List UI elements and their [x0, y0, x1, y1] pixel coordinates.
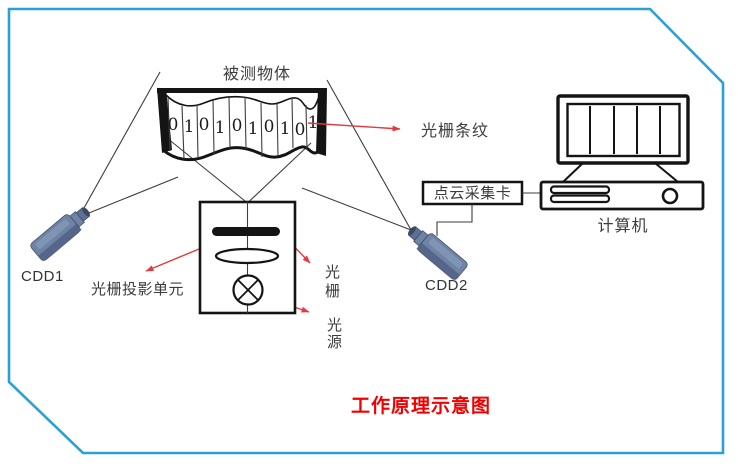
light-source-label-char2: 源: [327, 334, 343, 351]
monitor-icon: [558, 96, 688, 163]
lens-ellipse: [216, 249, 278, 263]
fringe-digit: 1: [184, 117, 195, 137]
light-source-bulb: [234, 276, 263, 305]
fringe-digit: 1: [280, 119, 291, 139]
fringe-label: 光栅条纹: [421, 122, 489, 140]
grating-label-char1: 光: [325, 264, 341, 281]
computer-label: 计算机: [597, 216, 648, 235]
fringe-digit: 0: [295, 120, 306, 140]
light-source-label: 光 源: [327, 317, 343, 351]
fringe-digit: 0: [232, 116, 243, 136]
fringe-digit: 0: [199, 115, 210, 135]
fringe-digit: 1: [215, 118, 226, 138]
diagram-title: 工作原理示意图: [351, 394, 491, 417]
cdd2-label: CDD2: [425, 277, 468, 294]
fringe-digit: 1: [248, 119, 259, 139]
light-source-label-char1: 光: [327, 317, 343, 334]
host-unit-icon: [541, 182, 703, 209]
acquisition-card-label: 点云采集卡: [434, 185, 512, 202]
working-principle-diagram: 被测物体 0101010101: [0, 0, 738, 467]
diagram-canvas: 被测物体 0101010101: [0, 0, 738, 467]
fringe-digit: 0: [264, 117, 275, 137]
projector-unit: [200, 202, 295, 313]
fringe-digit: 0: [168, 115, 179, 135]
grating-bar: [212, 227, 280, 236]
cdd1-label: CDD1: [21, 268, 64, 285]
grating-label-char2: 栅: [325, 283, 341, 300]
measured-object-label: 被测物体: [223, 65, 291, 83]
projection-unit-label: 光栅投影单元: [91, 281, 184, 298]
